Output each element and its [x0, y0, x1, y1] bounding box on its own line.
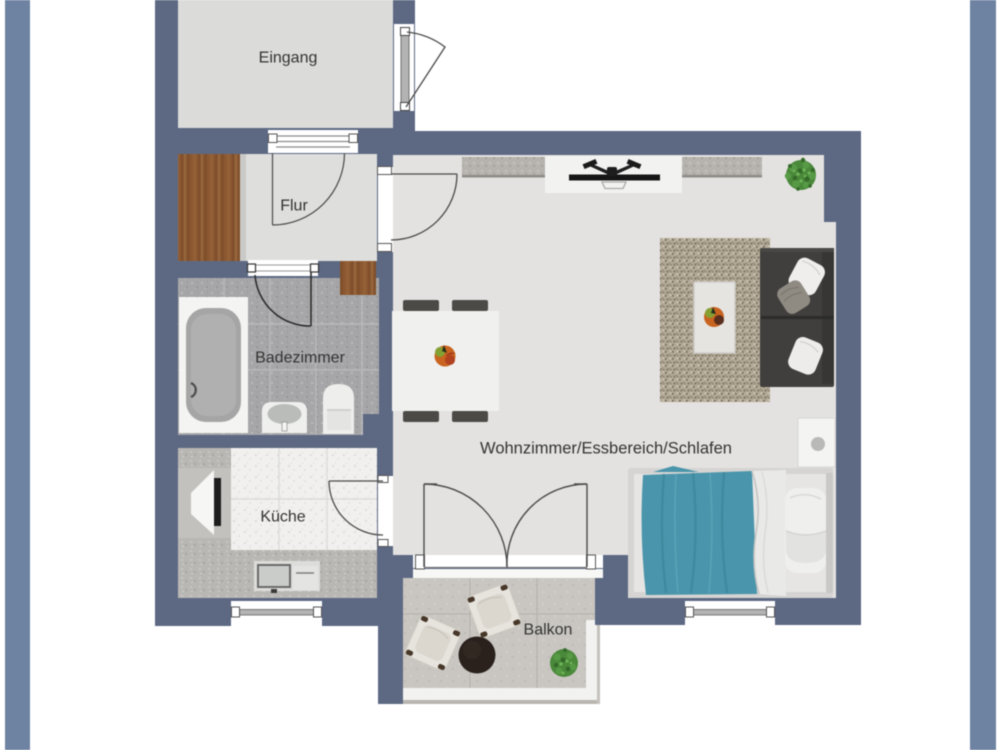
svg-text:Balkon: Balkon	[524, 622, 573, 639]
svg-text:Küche: Küche	[260, 509, 305, 526]
svg-text:Wohnzimmer/Essbereich/Schlafen: Wohnzimmer/Essbereich/Schlafen	[480, 440, 732, 458]
svg-text:Flur: Flur	[280, 198, 308, 215]
svg-text:Badezimmer: Badezimmer	[255, 350, 345, 367]
svg-text:Eingang: Eingang	[259, 50, 318, 67]
